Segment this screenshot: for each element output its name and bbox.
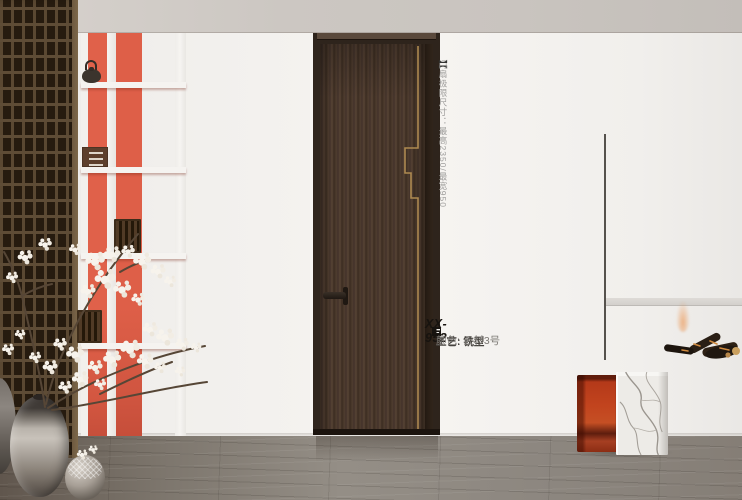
fireplace-base-strip [596, 356, 742, 364]
shelf-board [81, 167, 186, 173]
door-handle [323, 292, 346, 299]
interior-door [313, 33, 440, 433]
teapot-decor [82, 60, 101, 83]
ceiling [0, 0, 742, 33]
marble-side-shade [658, 372, 668, 455]
door-floor-reflection [316, 436, 438, 462]
door-gold-inlay [313, 33, 440, 433]
door-bottom-gap [313, 429, 440, 435]
teapot-lid [89, 67, 94, 71]
blossom-branch-decor [0, 212, 232, 500]
fireplace-frame-line [604, 134, 606, 360]
fireplace-ledge [606, 298, 742, 306]
spec-bracket-close: 】 [439, 60, 448, 70]
drawer-box-decor [82, 147, 108, 167]
marble-pedestal [616, 372, 668, 455]
spec-text: 门扇极限尺寸：最高2350/最宽950 [439, 60, 448, 208]
teapot-body [82, 69, 101, 83]
firewood-logs [658, 326, 742, 360]
showroom-scene: 【门扇极限尺寸：最高2350/最宽950】 XX-952 工艺: 铣型 颜色: … [0, 0, 742, 500]
product-color: 颜色: 云杉3号 [436, 333, 500, 348]
